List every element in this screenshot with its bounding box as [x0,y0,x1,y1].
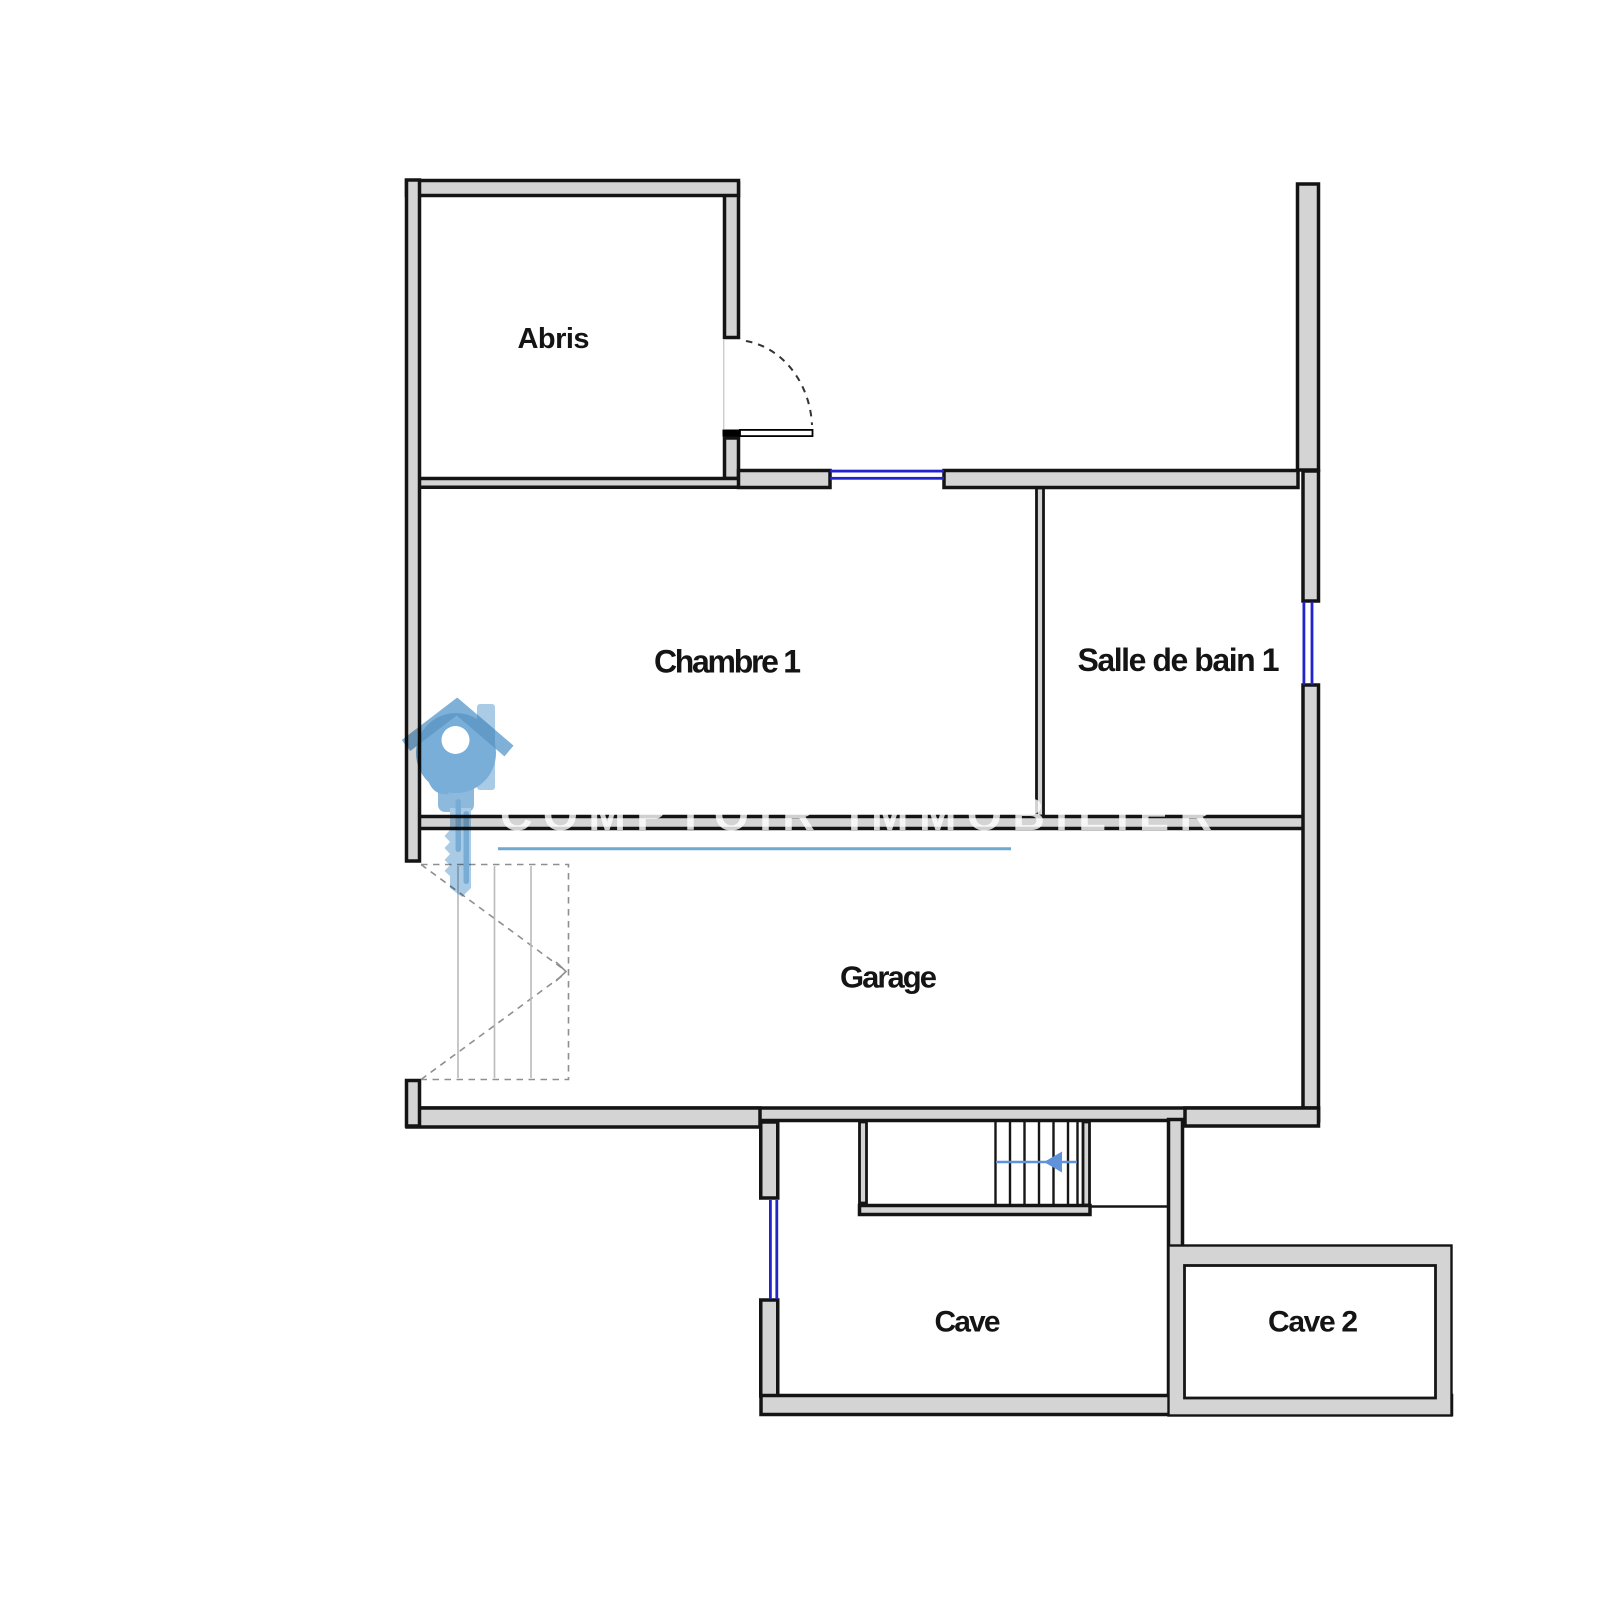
svg-text:Salle de bain 1: Salle de bain 1 [1078,642,1280,678]
svg-text:Garage: Garage [840,960,937,995]
svg-text:Cave: Cave [935,1306,1001,1339]
svg-text:Abris: Abris [518,323,590,355]
svg-text:Chambre 1: Chambre 1 [654,644,801,680]
svg-text:COMPTOIR IMMOBILIER: COMPTOIR IMMOBILIER [500,789,1212,840]
svg-text:Cave 2: Cave 2 [1268,1306,1358,1339]
